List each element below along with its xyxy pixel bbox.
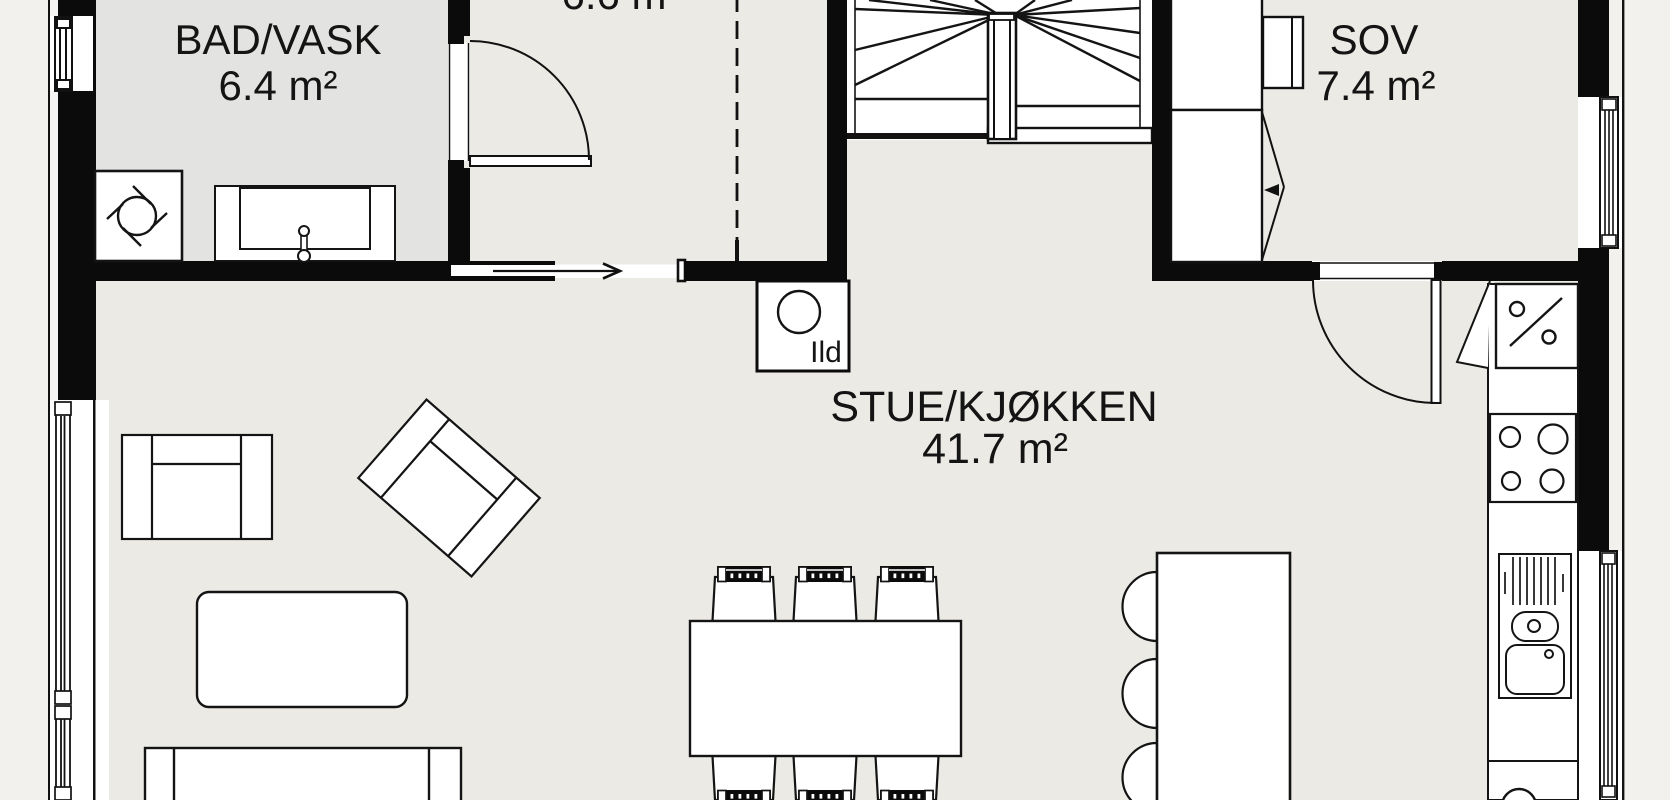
svg-text:STUE/KJØKKEN: STUE/KJØKKEN: [830, 383, 1157, 431]
svg-text:7.4 m²: 7.4 m²: [1316, 62, 1435, 109]
svg-text:41.7 m²: 41.7 m²: [922, 425, 1068, 473]
svg-text:6.6 m²: 6.6 m²: [561, 0, 680, 18]
svg-text:BAD/VASK: BAD/VASK: [175, 16, 382, 63]
svg-text:6.4 m²: 6.4 m²: [218, 62, 337, 109]
svg-text:SOV: SOV: [1330, 16, 1419, 63]
svg-text:Ild: Ild: [810, 336, 842, 369]
